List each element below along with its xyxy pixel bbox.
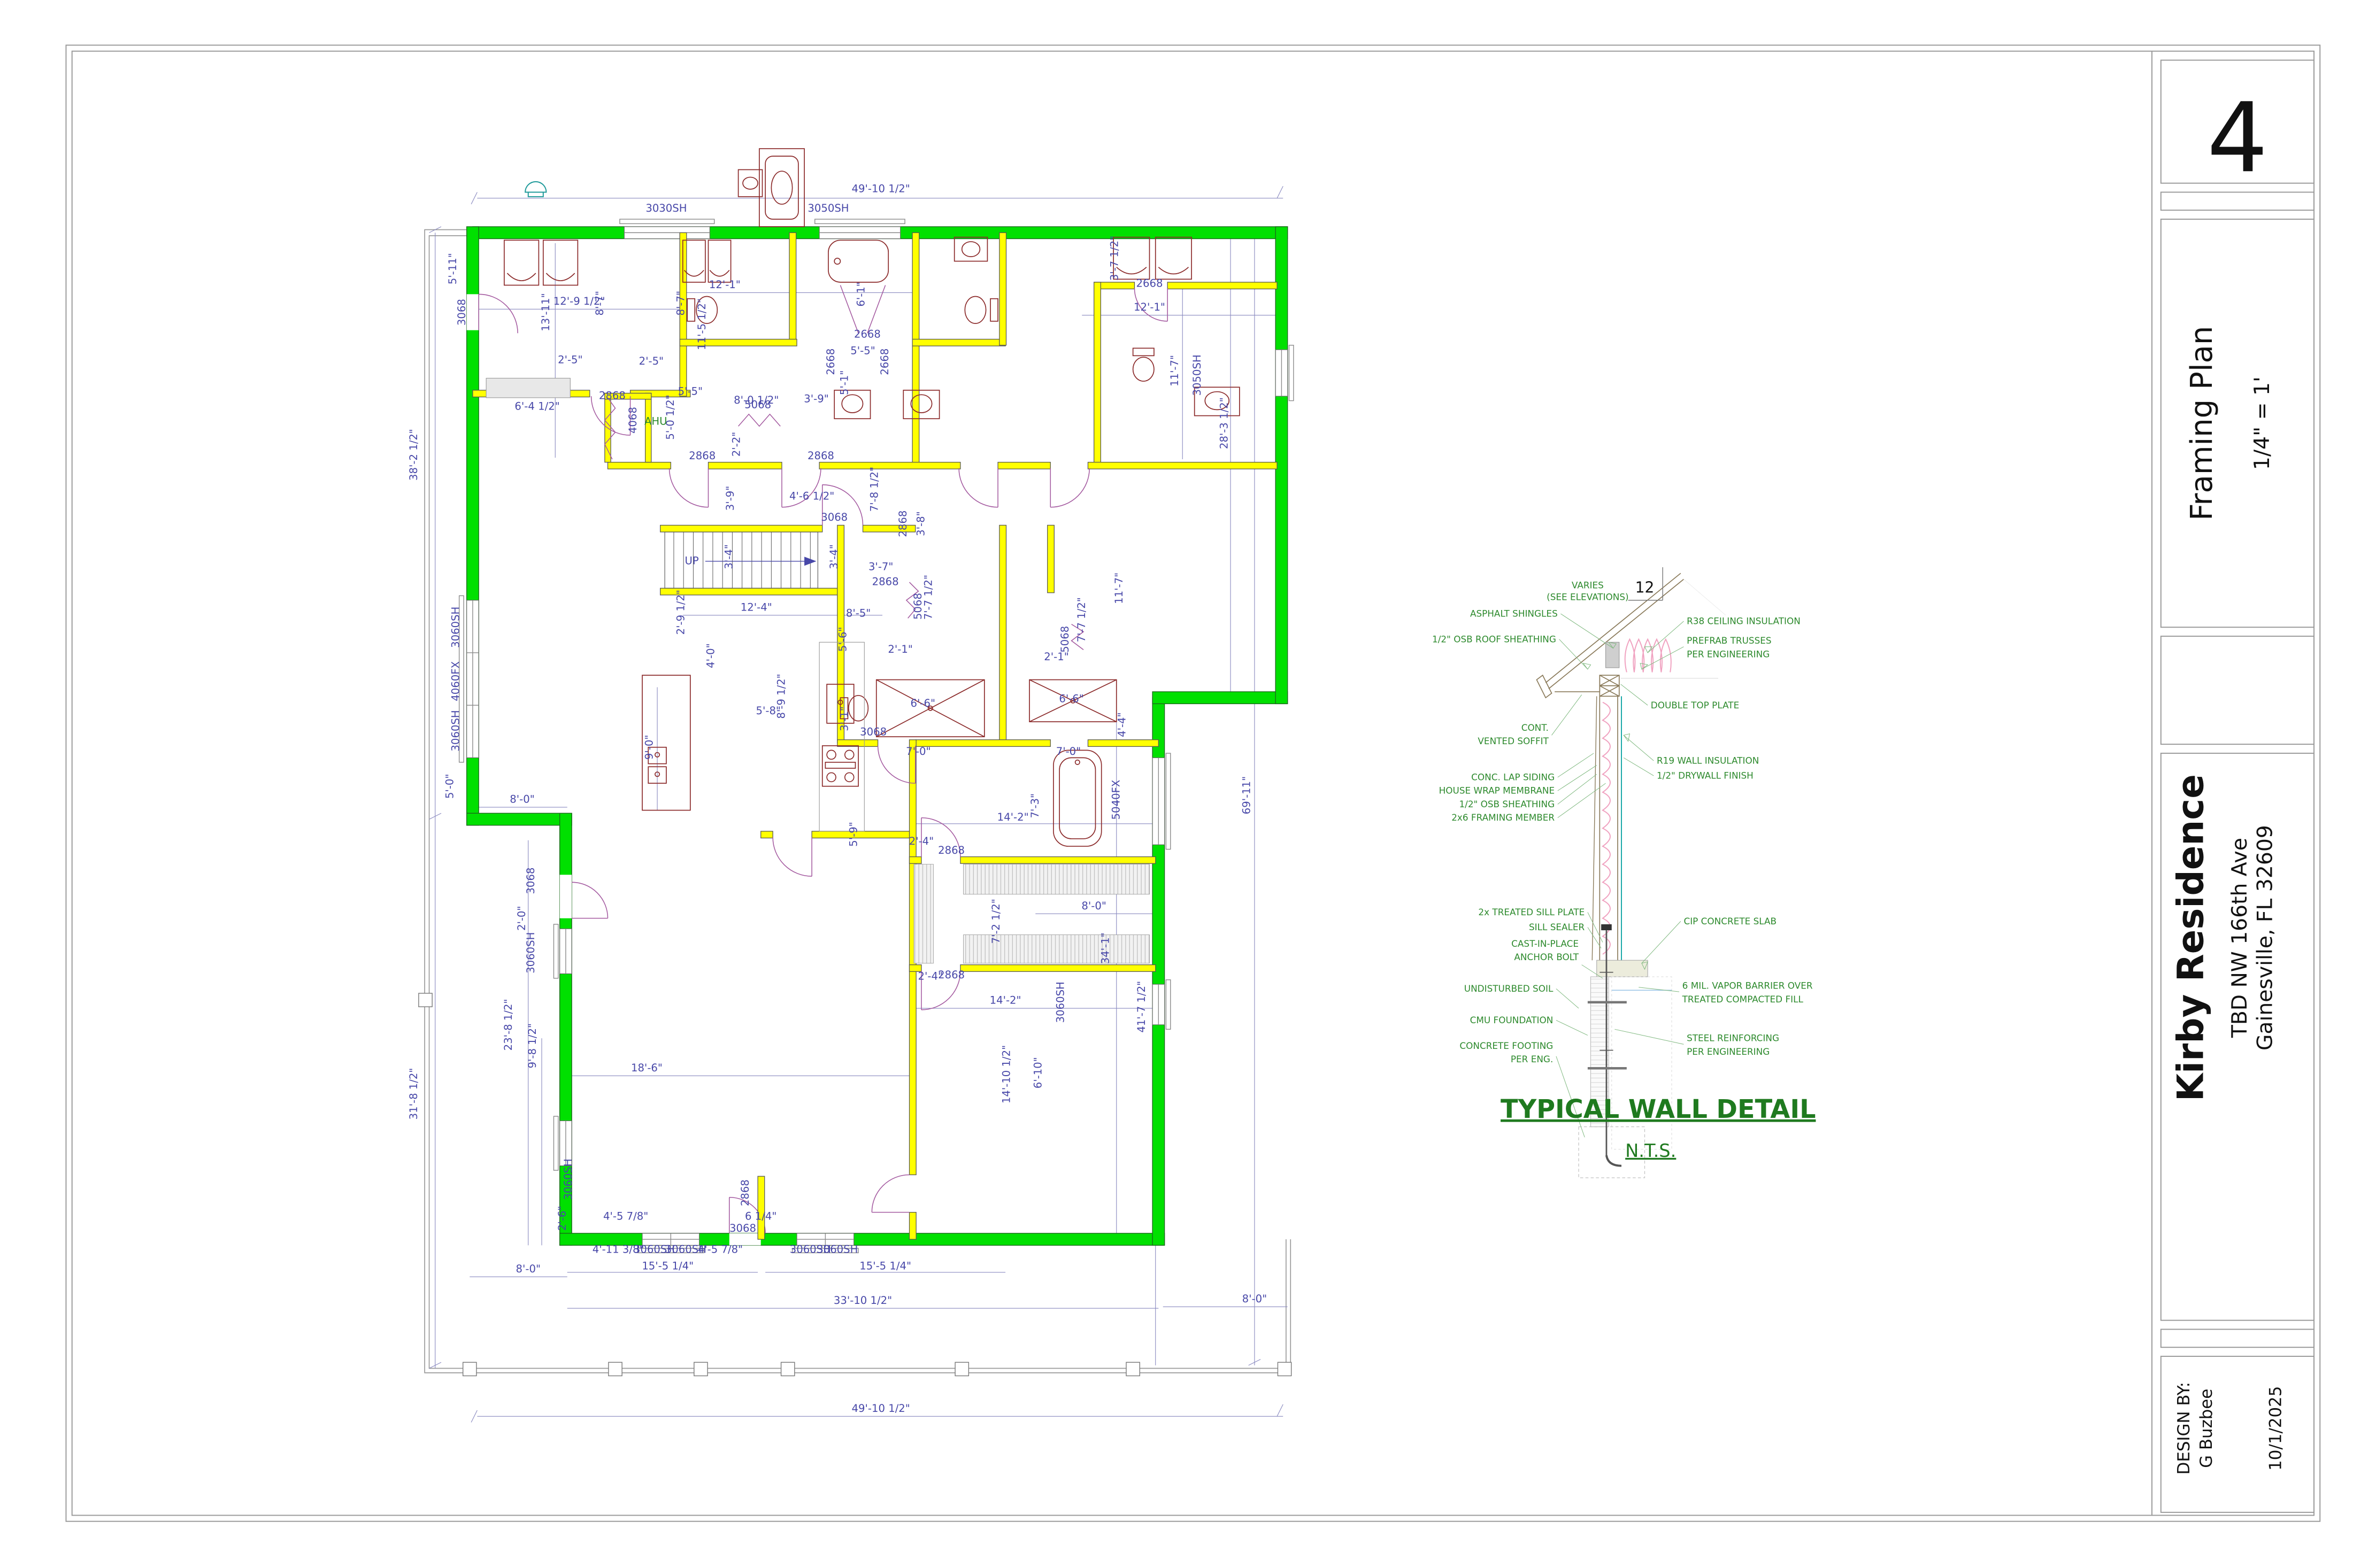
label: 5'-6" bbox=[837, 627, 849, 651]
label: 12'-1" bbox=[709, 279, 741, 291]
label: CONCRETE FOOTING bbox=[1459, 1040, 1553, 1051]
label: 2'-4" bbox=[909, 835, 934, 847]
label: 15'-5 1/4" bbox=[859, 1260, 911, 1272]
label: 7'-2 1/2" bbox=[990, 899, 1002, 944]
interior-doors bbox=[591, 285, 1168, 1212]
label: 5'-9" bbox=[847, 822, 859, 846]
label: 8'-5" bbox=[846, 607, 871, 620]
label: 2x TREATED SILL PLATE bbox=[1478, 907, 1585, 917]
label: 2668 bbox=[825, 349, 837, 375]
wall-detail-drawing: 12 VARIES (SEE ELEVATIONS) ASPHALT SHING… bbox=[1432, 567, 1813, 1178]
window-3050sh-top bbox=[815, 219, 905, 238]
project-name: Kirby Residence bbox=[2169, 774, 2211, 1101]
label: 2868 bbox=[872, 576, 899, 588]
floor-plan: 49'-10 1/2"49'-10 1/2"33'-10 1/2"15'-5 1… bbox=[407, 149, 1294, 1422]
tub-bath1 bbox=[828, 240, 888, 282]
wall-sink-icon bbox=[739, 169, 763, 197]
framing-plan-sheet-svg: 4 Framing Plan 1/4" = 1' Kirby Residence… bbox=[0, 0, 2353, 1568]
label: 2668 bbox=[1136, 277, 1163, 289]
label: 2868 bbox=[938, 844, 965, 856]
label: 2868 bbox=[808, 450, 834, 462]
label: 8'-7" bbox=[594, 291, 606, 315]
project-address-1: TBD NW 166th Ave bbox=[2228, 838, 2252, 1038]
label: 4'-5 7/8" bbox=[698, 1243, 743, 1255]
design-by-label: DESIGN BY: bbox=[2174, 1382, 2194, 1474]
label: 12'-1" bbox=[1134, 301, 1165, 313]
label: 6 1/4" bbox=[745, 1210, 776, 1223]
label: 1/2" OSB ROOF SHEATHING bbox=[1432, 634, 1556, 644]
label: PER ENG. bbox=[1511, 1054, 1553, 1064]
sheet-number: 4 bbox=[2207, 82, 2268, 194]
varies-line-2: (SEE ELEVATIONS) bbox=[1547, 592, 1628, 603]
project-address-2: Gainesville, FL 32609 bbox=[2253, 825, 2277, 1051]
label: 9'-8 1/2" bbox=[526, 1023, 539, 1068]
label: 3'-9" bbox=[804, 392, 828, 405]
label: 3060SH bbox=[562, 1158, 574, 1200]
label: 4'-5 7/8" bbox=[603, 1210, 648, 1223]
label: 3060SH bbox=[450, 607, 462, 648]
window-5040fx-right bbox=[1152, 753, 1171, 849]
label: 6'-6" bbox=[1059, 693, 1083, 705]
label: 11'-7" bbox=[1168, 355, 1181, 387]
label: 6 MIL. VAPOR BARRIER OVER bbox=[1682, 980, 1813, 991]
detail-callouts-right: R38 CEILING INSULATIONPREFRAB TRUSSESPER… bbox=[1651, 616, 1813, 1057]
label: 3'-4" bbox=[722, 544, 735, 569]
window-3050sh-right bbox=[1275, 345, 1294, 401]
label: 2'-9 1/2" bbox=[675, 590, 687, 635]
label: 3068 bbox=[860, 725, 887, 738]
wall-detail-title: TYPICAL WALL DETAIL bbox=[1501, 1095, 1816, 1124]
label: 1/2" OSB SHEATHING bbox=[1459, 799, 1555, 809]
label: AHU bbox=[644, 415, 667, 427]
windows-left-wall bbox=[459, 596, 479, 762]
label: 69'-11" bbox=[1241, 776, 1253, 814]
label: 2668 bbox=[854, 328, 881, 341]
label: 3068 bbox=[729, 1222, 756, 1234]
dressers-master bbox=[1113, 237, 1191, 280]
label: 3068 bbox=[525, 868, 537, 894]
label: CIP CONCRETE SLAB bbox=[1683, 916, 1777, 926]
window-3030sh-top bbox=[620, 219, 714, 238]
plan-title-box bbox=[2161, 219, 2314, 627]
hose-bib-icon bbox=[525, 182, 546, 197]
label: 2'-5" bbox=[558, 353, 582, 366]
label: 2868 bbox=[739, 1179, 751, 1206]
label: 15'-5 1/4" bbox=[642, 1260, 694, 1272]
slope-value: 12 bbox=[1635, 579, 1655, 597]
label: 49'-10 1/2" bbox=[852, 1402, 910, 1415]
label: 7'-3" bbox=[1029, 793, 1041, 818]
toilet-3 bbox=[1133, 348, 1154, 381]
wall-detail: 12 VARIES (SEE ELEVATIONS) ASPHALT SHING… bbox=[1432, 567, 1816, 1178]
label: 14'-10 1/2" bbox=[1001, 1045, 1013, 1103]
label: 4060FX bbox=[450, 661, 462, 701]
label: 12'-4" bbox=[741, 601, 772, 613]
label: 5'-5" bbox=[678, 385, 703, 397]
label: 7'-0" bbox=[1056, 745, 1081, 758]
label: UP bbox=[685, 554, 699, 567]
label: 5'-1" bbox=[838, 370, 850, 395]
label: 33'-10 1/2" bbox=[834, 1294, 892, 1307]
label: 6'-10" bbox=[1032, 1057, 1044, 1088]
label: 8'-0" bbox=[510, 793, 534, 806]
vanity-bath2 bbox=[955, 237, 988, 261]
label: 7'-0" bbox=[906, 745, 931, 758]
label: 3060SH bbox=[525, 932, 537, 974]
label: 11'-5 1/2" bbox=[696, 298, 708, 350]
label: PER ENGINEERING bbox=[1687, 648, 1770, 659]
label: 8'-7" bbox=[675, 291, 687, 315]
label: 3060SH bbox=[1055, 982, 1067, 1023]
label: 14'-2" bbox=[990, 994, 1021, 1007]
label: 8'-0" bbox=[1081, 900, 1106, 912]
label: 5'-11" bbox=[447, 253, 459, 284]
label: 3050SH bbox=[1191, 354, 1203, 396]
label: 2668 bbox=[879, 349, 891, 375]
label: UNDISTURBED SOIL bbox=[1464, 983, 1554, 994]
toilet-2 bbox=[965, 297, 998, 324]
label: 7'-8 1/2" bbox=[868, 467, 881, 512]
label: 2868 bbox=[938, 969, 965, 981]
varies-line-1: VARIES bbox=[1572, 580, 1604, 590]
exterior-doors bbox=[467, 294, 765, 1245]
label: 13'-11" bbox=[540, 293, 552, 331]
plan-scale: 1/4" = 1' bbox=[2250, 376, 2274, 470]
label: 4'-0" bbox=[705, 643, 717, 668]
label: 1/2" DRYWALL FINISH bbox=[1657, 770, 1754, 781]
label: 2'-2" bbox=[730, 432, 742, 457]
label: R38 CEILING INSULATION bbox=[1687, 616, 1801, 627]
range bbox=[822, 746, 858, 786]
label: 3068 bbox=[821, 511, 848, 523]
label: PREFRAB TRUSSES bbox=[1687, 635, 1772, 646]
label: 18'-6" bbox=[631, 1062, 663, 1074]
label: 8'-0" bbox=[1242, 1293, 1267, 1305]
label: 6'-6" bbox=[911, 697, 935, 709]
label: 2x6 FRAMING MEMBER bbox=[1451, 812, 1555, 823]
label: 8'-0" bbox=[516, 1263, 541, 1275]
utility-basin-top bbox=[759, 149, 804, 227]
tub-master bbox=[1054, 750, 1102, 846]
window-3060sh-left-a bbox=[553, 924, 572, 978]
double-top-plate bbox=[1600, 675, 1619, 696]
label: 2868 bbox=[897, 511, 909, 537]
plan-dimension-labels: 49'-10 1/2"49'-10 1/2"33'-10 1/2"15'-5 1… bbox=[407, 182, 1267, 1414]
label: 2868 bbox=[599, 390, 626, 402]
label: VENTED SOFFIT bbox=[1478, 736, 1549, 746]
label: 5'-5" bbox=[850, 345, 875, 357]
label: 6'-4 1/2" bbox=[514, 400, 559, 412]
label: 4068 bbox=[627, 407, 639, 434]
label: HOUSE WRAP MEMBRANE bbox=[1439, 785, 1555, 796]
label: 41'-7 1/2" bbox=[1135, 981, 1148, 1033]
label: 7'-7 1/2" bbox=[1075, 597, 1088, 642]
detail-callouts-left: ASPHALT SHINGLES1/2" OSB ROOF SHEATHINGC… bbox=[1432, 608, 1585, 1064]
label: STEEL REINFORCING bbox=[1687, 1033, 1779, 1044]
label: 3060SH bbox=[450, 710, 462, 751]
label: 4'-6 1/2" bbox=[789, 490, 834, 503]
label: CONC. LAP SIDING bbox=[1471, 771, 1555, 782]
label: 5040FX bbox=[1110, 780, 1122, 820]
label: SILL SEALER bbox=[1529, 922, 1585, 932]
washer-dryer-2 bbox=[683, 240, 731, 282]
label: 5068 bbox=[744, 399, 771, 411]
wall-detail-scale-note: N.T.S. bbox=[1625, 1140, 1676, 1161]
label: 34'-1" bbox=[1099, 932, 1112, 964]
label: CAST-IN-PLACE bbox=[1511, 938, 1579, 949]
slope-symbol: 12 bbox=[1628, 567, 1663, 600]
label: 5068 bbox=[1059, 626, 1071, 653]
label: 2'-0" bbox=[516, 906, 528, 930]
label: TREATED COMPACTED FILL bbox=[1682, 994, 1804, 1005]
title-block: 4 Framing Plan 1/4" = 1' Kirby Residence… bbox=[2152, 51, 2314, 1516]
window-3060sh-right-low bbox=[1152, 980, 1171, 1030]
label: 3'-7" bbox=[868, 561, 893, 573]
label: 38'-2 1/2" bbox=[407, 429, 420, 481]
sheet-border bbox=[66, 45, 2320, 1521]
label: 2'-1" bbox=[888, 643, 912, 655]
label: 3030SH bbox=[645, 202, 687, 214]
label: 2'-5" bbox=[639, 355, 664, 367]
label: 3'-7 1/2" bbox=[1109, 236, 1121, 281]
label: ANCHOR BOLT bbox=[1514, 952, 1579, 962]
label: PER ENGINEERING bbox=[1687, 1046, 1770, 1057]
label: 3050SH bbox=[808, 202, 849, 214]
label: 31'-8 1/2" bbox=[407, 1068, 420, 1120]
label: 2868 bbox=[689, 450, 716, 462]
label: R19 WALL INSULATION bbox=[1657, 755, 1759, 766]
label: 3'-8" bbox=[915, 511, 927, 536]
label: 14'-2" bbox=[997, 811, 1029, 823]
label: 6'-1" bbox=[855, 282, 867, 306]
label: DOUBLE TOP PLATE bbox=[1651, 700, 1739, 710]
label: 2'-6" bbox=[556, 1206, 568, 1231]
design-date: 10/1/2025 bbox=[2266, 1386, 2285, 1471]
label: 3068 bbox=[456, 299, 468, 326]
label: 5'-0" bbox=[443, 774, 456, 798]
label: 3'-9" bbox=[724, 486, 736, 511]
label: 7'-7 1/2" bbox=[922, 575, 935, 620]
label: 3060SH bbox=[817, 1243, 858, 1255]
label: 3'-4" bbox=[828, 544, 840, 569]
label: 23'-8 1/2" bbox=[502, 999, 514, 1051]
label: ASPHALT SHINGLES bbox=[1470, 608, 1558, 619]
washer-dryer bbox=[504, 240, 578, 285]
drawing-sheet: 4 Framing Plan 1/4" = 1' Kirby Residence… bbox=[0, 0, 2353, 1568]
label: 28'-3 1/2" bbox=[1218, 397, 1230, 449]
label: 49'-10 1/2" bbox=[852, 182, 910, 195]
label: 5068 bbox=[912, 593, 924, 620]
label: CONT. bbox=[1521, 722, 1549, 733]
label: 4'-4" bbox=[1116, 712, 1128, 737]
designer-name: G Buzbee bbox=[2197, 1389, 2216, 1468]
label: 5'-8" bbox=[756, 705, 780, 717]
plan-title: Framing Plan bbox=[2185, 326, 2219, 520]
label: CMU FOUNDATION bbox=[1470, 1015, 1554, 1025]
label: 11'-7" bbox=[1113, 573, 1125, 604]
label: 3'-1" bbox=[838, 706, 850, 731]
label: 9'-0" bbox=[643, 735, 656, 760]
